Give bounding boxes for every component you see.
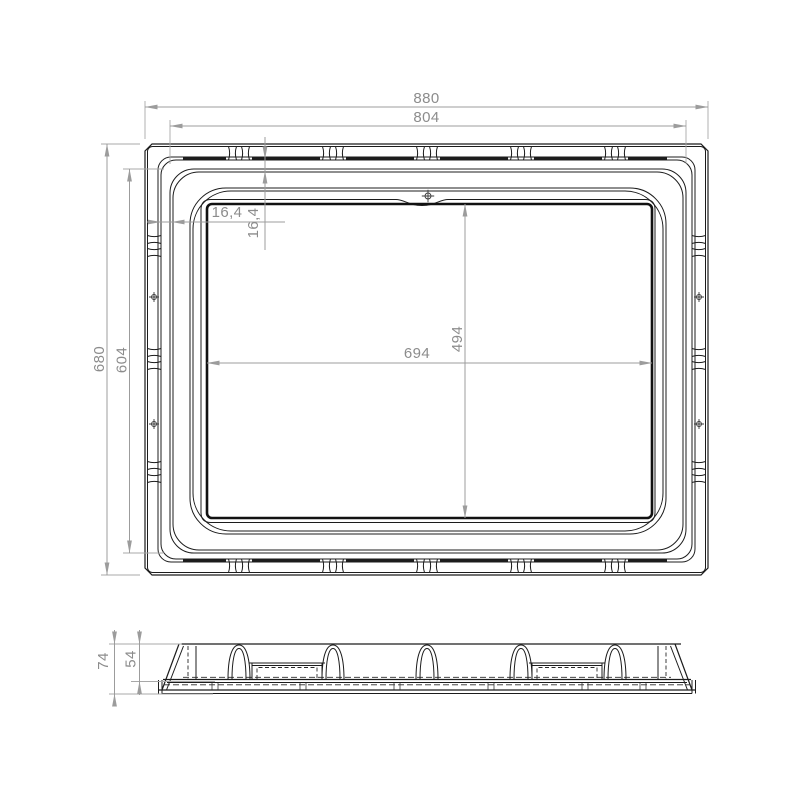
rib-pair <box>148 349 162 370</box>
dimension-label: 680 <box>91 346 108 372</box>
dimension-label: 804 <box>413 109 439 126</box>
rib-pair <box>323 147 344 161</box>
dimension-label: 604 <box>113 347 130 373</box>
dim-edge-offset-horizontal: 16,4 <box>147 204 285 222</box>
dimension-label: 494 <box>449 326 466 352</box>
dimension-label: 16,4 <box>212 204 243 221</box>
center-target-icon <box>422 190 434 202</box>
side-view <box>159 644 696 694</box>
dim-rim-height: 604 <box>113 169 164 553</box>
rib-pair <box>148 236 162 257</box>
alignment-marks <box>149 190 704 429</box>
rib-pair <box>417 559 438 573</box>
side-view-bottom-ticks <box>212 683 646 690</box>
dim-opening-width: 694 <box>207 345 652 363</box>
rib-pair <box>229 147 250 161</box>
dimension-label: 880 <box>413 90 439 107</box>
dim-opening-height: 494 <box>449 204 466 518</box>
rib-pair <box>692 349 706 370</box>
side-view-outline <box>159 644 696 694</box>
drawing-page: 880 804 680 604 694 494 16, <box>0 0 800 800</box>
dimensions-side-view: 74 54 <box>95 630 215 706</box>
rib-pair <box>229 559 250 573</box>
dimension-label: 16,4 <box>245 208 262 239</box>
dim-profile-total-height: 74 <box>95 630 115 706</box>
dimension-label: 74 <box>95 652 112 670</box>
profile-slopes <box>162 644 692 690</box>
dimension-label: 54 <box>122 650 139 668</box>
side-view-ribs <box>228 645 626 680</box>
rib-pair <box>605 559 626 573</box>
rib-pair <box>605 147 626 161</box>
rib-pair <box>417 147 438 161</box>
rib-pair <box>692 462 706 483</box>
dim-profile-body-height: 54 <box>122 630 139 695</box>
rib-pair <box>148 462 162 483</box>
dimensions-top-view: 880 804 680 604 694 494 16, <box>91 90 708 575</box>
rib-pair <box>323 559 344 573</box>
rib-pair <box>511 559 532 573</box>
dim-rim-width: 804 <box>170 109 686 164</box>
dimension-label: 694 <box>404 345 430 362</box>
technical-drawing: 880 804 680 604 694 494 16, <box>0 0 800 800</box>
rib-pair <box>692 236 706 257</box>
rib-pair <box>511 147 532 161</box>
